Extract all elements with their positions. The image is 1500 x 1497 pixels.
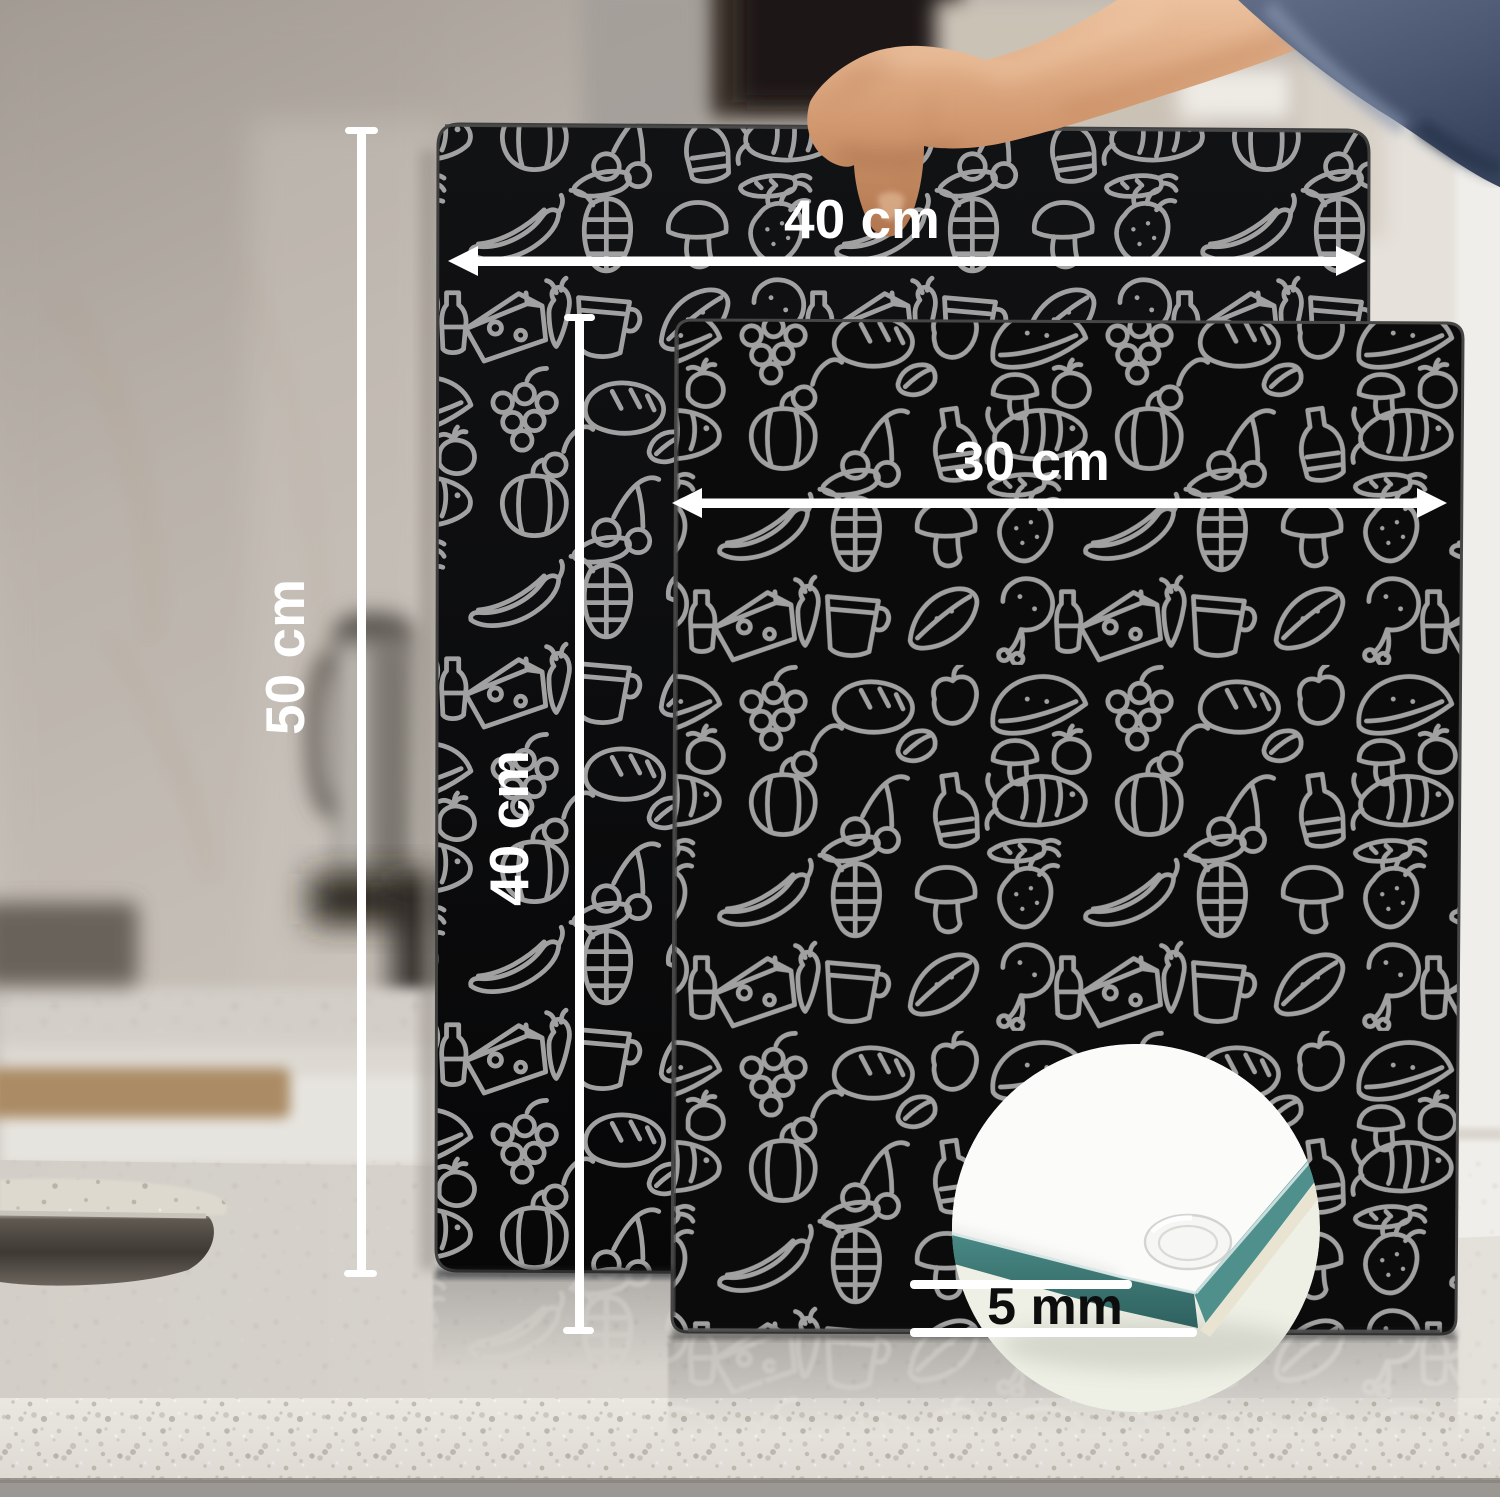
svg-text:30 cm: 30 cm (954, 430, 1110, 492)
svg-text:40 cm: 40 cm (478, 750, 540, 906)
svg-text:50 cm: 50 cm (254, 579, 316, 735)
svg-text:5 mm: 5 mm (987, 1278, 1123, 1336)
svg-text:40 cm: 40 cm (784, 188, 940, 250)
